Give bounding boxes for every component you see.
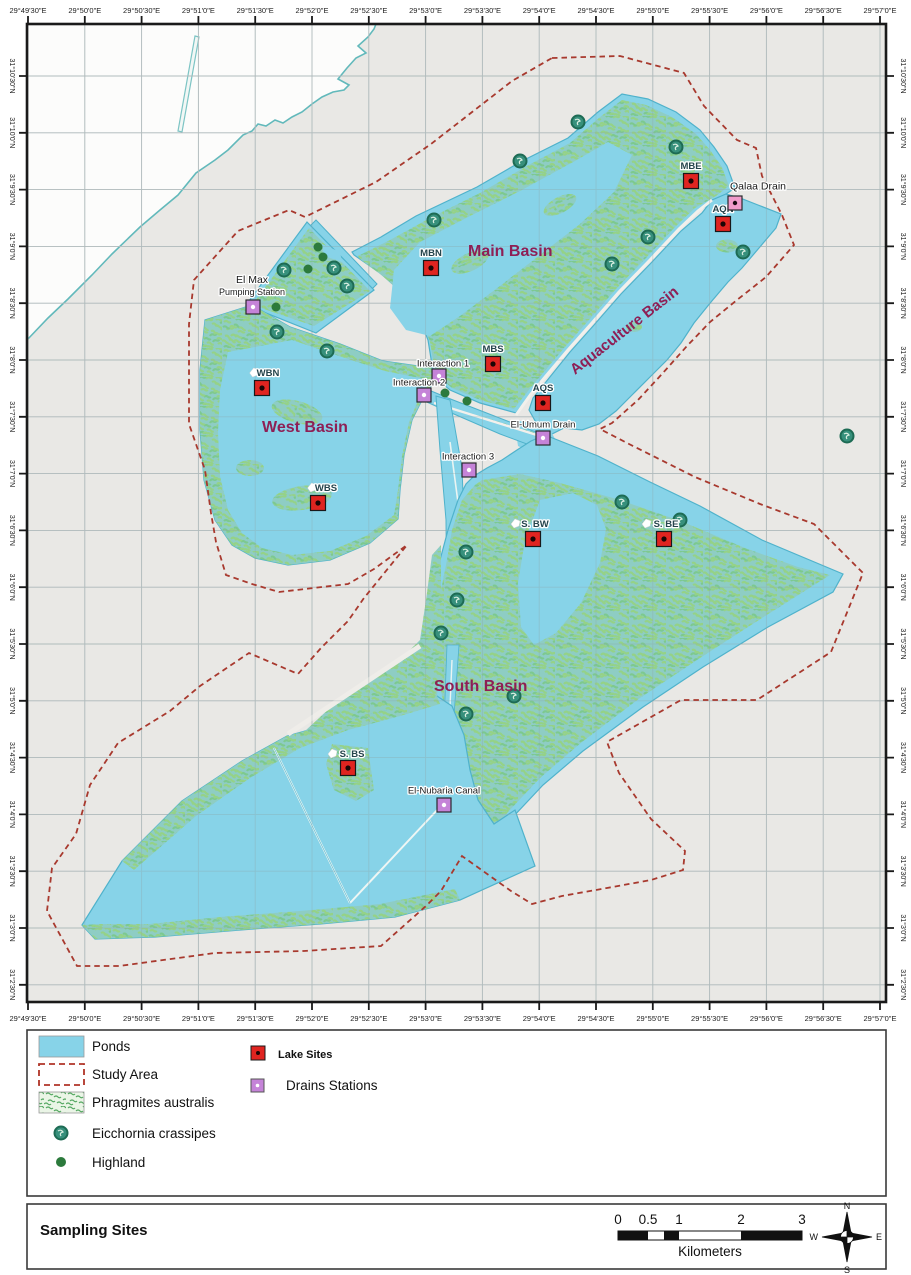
- svg-text:E: E: [876, 1232, 882, 1242]
- svg-text:29°57'0"E: 29°57'0"E: [864, 6, 897, 15]
- svg-text:31°7'0"N: 31°7'0"N: [899, 460, 907, 487]
- svg-text:31°7'30"N: 31°7'30"N: [8, 401, 16, 432]
- svg-text:29°52'0"E: 29°52'0"E: [296, 6, 329, 15]
- svg-text:29°50'30"E: 29°50'30"E: [123, 6, 160, 15]
- svg-text:2: 2: [737, 1212, 745, 1227]
- svg-text:29°52'30"E: 29°52'30"E: [350, 1014, 387, 1023]
- svg-text:S. BE: S. BE: [654, 519, 679, 530]
- svg-text:South Basin: South Basin: [434, 678, 527, 695]
- svg-text:Study Area: Study Area: [92, 1067, 159, 1082]
- svg-text:31°5'0"N: 31°5'0"N: [8, 687, 16, 714]
- svg-text:Kilometers: Kilometers: [678, 1244, 742, 1259]
- svg-text:Interaction 1: Interaction 1: [417, 359, 469, 370]
- svg-text:31°8'0"N: 31°8'0"N: [8, 346, 16, 373]
- svg-text:MBS: MBS: [482, 344, 503, 355]
- svg-text:29°56'0"E: 29°56'0"E: [750, 6, 783, 15]
- svg-text:Main Basin: Main Basin: [468, 243, 552, 260]
- svg-text:WBS: WBS: [315, 483, 337, 494]
- svg-text:31°7'30"N: 31°7'30"N: [899, 401, 907, 432]
- svg-text:Eicchornia crassipes: Eicchornia crassipes: [92, 1126, 216, 1141]
- svg-text:1: 1: [675, 1212, 683, 1227]
- svg-text:29°55'30"E: 29°55'30"E: [691, 1014, 728, 1023]
- svg-text:31°8'30"N: 31°8'30"N: [8, 288, 16, 319]
- svg-text:Phragmites australis: Phragmites australis: [92, 1095, 215, 1110]
- svg-text:S. BW: S. BW: [521, 519, 548, 530]
- svg-text:29°53'30"E: 29°53'30"E: [464, 6, 501, 15]
- svg-text:31°4'0"N: 31°4'0"N: [899, 801, 907, 828]
- svg-text:Pumping Station: Pumping Station: [219, 287, 285, 297]
- svg-text:29°51'30"E: 29°51'30"E: [237, 1014, 274, 1023]
- svg-text:31°4'0"N: 31°4'0"N: [8, 801, 16, 828]
- svg-text:31°5'30"N: 31°5'30"N: [899, 628, 907, 659]
- svg-text:29°54'0"E: 29°54'0"E: [523, 1014, 556, 1023]
- svg-text:31°5'0"N: 31°5'0"N: [899, 687, 907, 714]
- svg-text:29°56'30"E: 29°56'30"E: [805, 6, 842, 15]
- svg-text:31°4'30"N: 31°4'30"N: [8, 742, 16, 773]
- svg-text:29°49'30"E: 29°49'30"E: [9, 6, 46, 15]
- svg-text:31°5'30"N: 31°5'30"N: [8, 628, 16, 659]
- svg-text:29°52'30"E: 29°52'30"E: [350, 6, 387, 15]
- svg-text:31°3'0"N: 31°3'0"N: [899, 914, 907, 941]
- svg-text:El Max: El Max: [236, 274, 269, 286]
- svg-text:31°3'30"N: 31°3'30"N: [8, 856, 16, 887]
- svg-text:Highland: Highland: [92, 1155, 145, 1170]
- svg-text:31°10'30"N: 31°10'30"N: [8, 58, 16, 93]
- svg-text:31°2'30"N: 31°2'30"N: [899, 969, 907, 1000]
- svg-text:31°3'30"N: 31°3'30"N: [899, 856, 907, 887]
- svg-text:WBN: WBN: [257, 368, 280, 379]
- svg-text:31°2'30"N: 31°2'30"N: [8, 969, 16, 1000]
- svg-text:3: 3: [798, 1212, 806, 1227]
- svg-text:S. BS: S. BS: [340, 749, 365, 760]
- svg-text:N: N: [844, 1201, 851, 1211]
- svg-text:31°8'30"N: 31°8'30"N: [899, 288, 907, 319]
- svg-text:S: S: [844, 1265, 850, 1275]
- svg-text:W: W: [810, 1232, 819, 1242]
- svg-text:29°56'30"E: 29°56'30"E: [805, 1014, 842, 1023]
- svg-text:0: 0: [614, 1212, 622, 1227]
- svg-text:31°6'0"N: 31°6'0"N: [8, 574, 16, 601]
- svg-text:29°49'30"E: 29°49'30"E: [9, 1014, 46, 1023]
- svg-text:31°6'0"N: 31°6'0"N: [899, 574, 907, 601]
- svg-text:29°53'0"E: 29°53'0"E: [409, 1014, 442, 1023]
- svg-text:31°8'0"N: 31°8'0"N: [899, 346, 907, 373]
- svg-text:Ponds: Ponds: [92, 1039, 131, 1054]
- svg-text:29°54'30"E: 29°54'30"E: [577, 1014, 614, 1023]
- svg-text:29°53'30"E: 29°53'30"E: [464, 1014, 501, 1023]
- svg-text:Qalaa Drain: Qalaa Drain: [730, 181, 786, 193]
- svg-text:31°10'0"N: 31°10'0"N: [899, 117, 907, 148]
- svg-text:29°51'30"E: 29°51'30"E: [237, 6, 274, 15]
- svg-text:El-Umum Drain: El-Umum Drain: [511, 420, 576, 431]
- svg-text:29°54'0"E: 29°54'0"E: [523, 6, 556, 15]
- svg-text:31°3'0"N: 31°3'0"N: [8, 914, 16, 941]
- svg-text:31°7'0"N: 31°7'0"N: [8, 460, 16, 487]
- svg-text:29°56'0"E: 29°56'0"E: [750, 1014, 783, 1023]
- svg-text:29°51'0"E: 29°51'0"E: [182, 6, 215, 15]
- svg-text:31°10'30"N: 31°10'30"N: [899, 58, 907, 93]
- svg-text:29°50'0"E: 29°50'0"E: [68, 1014, 101, 1023]
- svg-text:29°54'30"E: 29°54'30"E: [577, 6, 614, 15]
- svg-text:31°9'30"N: 31°9'30"N: [899, 174, 907, 205]
- svg-text:West Basin: West Basin: [262, 419, 348, 436]
- svg-text:29°55'30"E: 29°55'30"E: [691, 6, 728, 15]
- svg-text:Sampling Sites: Sampling Sites: [40, 1222, 148, 1239]
- svg-text:Drains Stations: Drains Stations: [286, 1078, 378, 1093]
- svg-text:29°53'0"E: 29°53'0"E: [409, 6, 442, 15]
- svg-text:0.5: 0.5: [639, 1212, 658, 1227]
- svg-text:29°55'0"E: 29°55'0"E: [636, 6, 669, 15]
- svg-text:29°51'0"E: 29°51'0"E: [182, 1014, 215, 1023]
- svg-text:Lake Sites: Lake Sites: [278, 1049, 332, 1061]
- svg-text:MBE: MBE: [680, 161, 701, 172]
- svg-text:31°10'0"N: 31°10'0"N: [8, 117, 16, 148]
- svg-text:31°4'30"N: 31°4'30"N: [899, 742, 907, 773]
- svg-text:31°9'0"N: 31°9'0"N: [899, 233, 907, 260]
- svg-text:Interaction 3: Interaction 3: [442, 452, 494, 463]
- svg-text:El-Nubaria Canal: El-Nubaria Canal: [408, 786, 480, 797]
- svg-text:AQS: AQS: [533, 383, 554, 394]
- svg-text:29°57'0"E: 29°57'0"E: [864, 1014, 897, 1023]
- svg-text:31°6'30"N: 31°6'30"N: [8, 515, 16, 546]
- svg-text:31°9'30"N: 31°9'30"N: [8, 174, 16, 205]
- svg-text:Interaction 2: Interaction 2: [393, 378, 445, 389]
- svg-text:31°9'0"N: 31°9'0"N: [8, 233, 16, 260]
- svg-text:29°50'0"E: 29°50'0"E: [68, 6, 101, 15]
- svg-text:MBN: MBN: [420, 248, 442, 259]
- svg-text:29°52'0"E: 29°52'0"E: [296, 1014, 329, 1023]
- svg-text:31°6'30"N: 31°6'30"N: [899, 515, 907, 546]
- svg-text:29°55'0"E: 29°55'0"E: [636, 1014, 669, 1023]
- svg-text:29°50'30"E: 29°50'30"E: [123, 1014, 160, 1023]
